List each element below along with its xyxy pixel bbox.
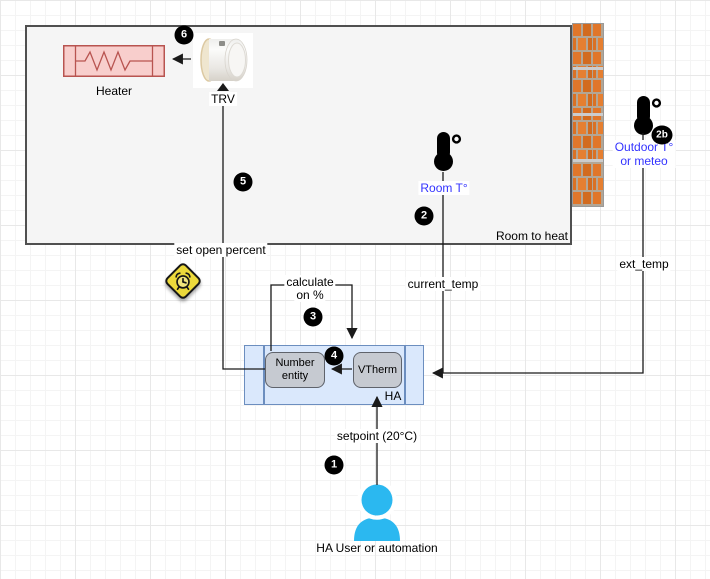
- heater-node: [63, 45, 165, 82]
- user-icon: [351, 483, 403, 546]
- ha-container-right-divider: [404, 346, 406, 404]
- alarm-clock-icon: [172, 270, 194, 292]
- heater-icon: [63, 45, 165, 77]
- step-badge-2: 2: [415, 207, 434, 226]
- step-badge-5: 5: [234, 173, 253, 192]
- vtherm-label: VTherm: [358, 364, 397, 377]
- brick-wall-graphic: [572, 23, 604, 207]
- vtherm-node: VTherm: [353, 352, 402, 388]
- number-entity-node: Number entity: [265, 352, 325, 388]
- trv-node: [193, 33, 253, 93]
- current-temp-label: current_temp: [406, 277, 481, 291]
- heater-label: Heater: [94, 84, 134, 98]
- step-badge-3: 3: [304, 308, 323, 327]
- trv-label: TRV: [209, 92, 237, 106]
- diagram-canvas: Room to heat: [0, 0, 710, 579]
- ha-label: HA: [383, 389, 404, 403]
- set-open-percent-label: set open percent: [174, 243, 267, 257]
- timer-diamond: [163, 261, 203, 301]
- step-badge-4: 4: [325, 347, 344, 366]
- outdoor-temp-label-line2: or meteo: [620, 154, 667, 168]
- trv-icon: [193, 33, 253, 88]
- brick-wall: [572, 23, 604, 207]
- step-badge-6: 6: [175, 26, 194, 45]
- outdoor-temp-label: Outdoor T° or meteo: [613, 140, 676, 168]
- step-badge-2b: 2b: [652, 126, 673, 145]
- room-temp-label: Room T°: [418, 181, 469, 195]
- calculate-label-line2: on %: [294, 288, 325, 302]
- setpoint-label: setpoint (20°C): [335, 429, 419, 443]
- step-badge-1: 1: [325, 456, 344, 475]
- number-entity-label: Number entity: [266, 357, 324, 383]
- room-label: Room to heat: [494, 229, 570, 243]
- calculate-label-line1: calculate: [284, 275, 335, 289]
- room-temp-icon: [429, 131, 463, 177]
- ext-temp-label: ext_temp: [617, 257, 670, 271]
- user-label: HA User or automation: [314, 541, 439, 555]
